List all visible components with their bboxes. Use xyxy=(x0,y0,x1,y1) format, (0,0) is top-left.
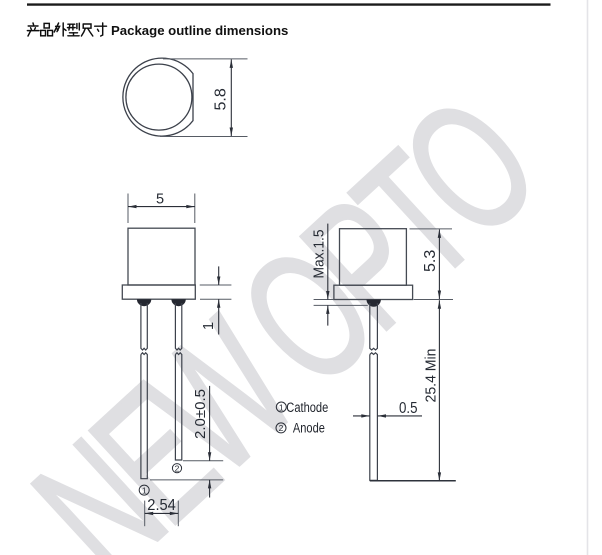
svg-text:2.0±0.5: 2.0±0.5 xyxy=(192,389,209,439)
svg-text:5: 5 xyxy=(156,192,164,208)
svg-text:1: 1 xyxy=(142,485,147,495)
svg-text:1: 1 xyxy=(279,402,284,412)
svg-text:5.8: 5.8 xyxy=(213,88,230,110)
svg-text:0.5: 0.5 xyxy=(399,400,418,417)
svg-text:1: 1 xyxy=(201,322,217,330)
svg-text:Package outline dimensions: Package outline dimensions xyxy=(111,23,288,38)
svg-text:NEW OPTO: NEW OPTO xyxy=(0,64,570,555)
svg-text:Cathode: Cathode xyxy=(286,400,328,415)
svg-text:2.54: 2.54 xyxy=(147,497,176,514)
svg-text:Max.1.5: Max.1.5 xyxy=(311,230,328,279)
svg-text:5.3: 5.3 xyxy=(422,250,439,272)
svg-text:2: 2 xyxy=(175,463,180,473)
svg-text:2: 2 xyxy=(279,423,284,433)
svg-text:25.4 Min: 25.4 Min xyxy=(423,349,440,403)
svg-text:Anode: Anode xyxy=(293,421,325,436)
